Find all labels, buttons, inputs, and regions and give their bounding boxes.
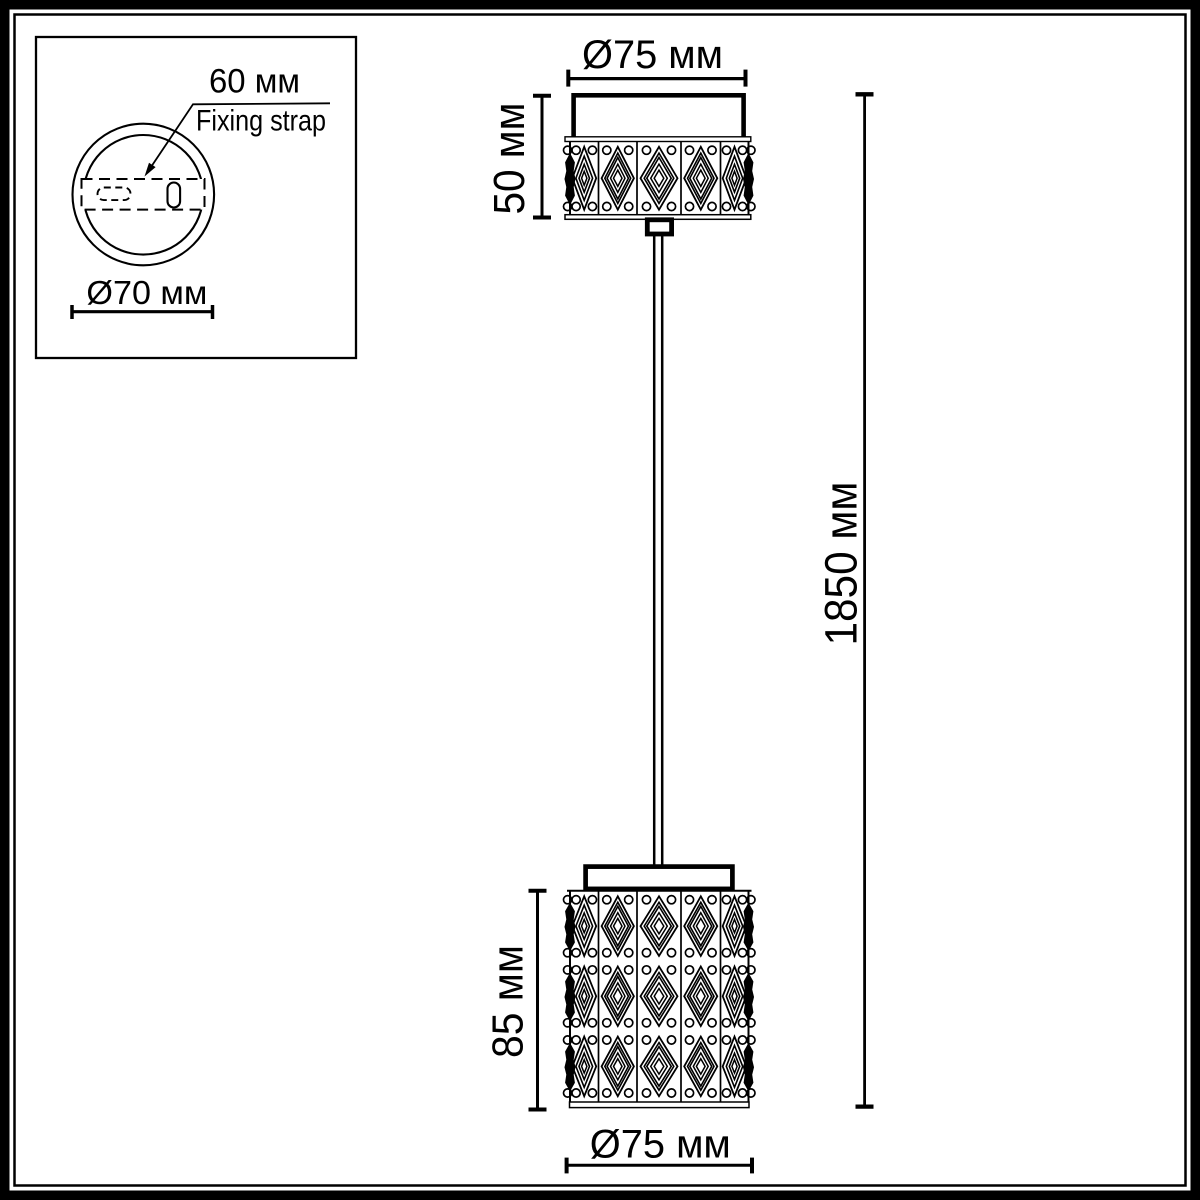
svg-text:Ø75 мм: Ø75 мм: [590, 1123, 731, 1167]
svg-text:Fixing strap: Fixing strap: [196, 105, 326, 138]
svg-text:50 мм: 50 мм: [485, 103, 534, 215]
svg-text:1850 мм: 1850 мм: [816, 482, 867, 646]
svg-text:85 мм: 85 мм: [484, 945, 533, 1058]
svg-text:Ø70 мм: Ø70 мм: [86, 274, 207, 311]
svg-text:Ø75 мм: Ø75 мм: [582, 33, 723, 77]
svg-text:60 мм: 60 мм: [209, 63, 300, 101]
